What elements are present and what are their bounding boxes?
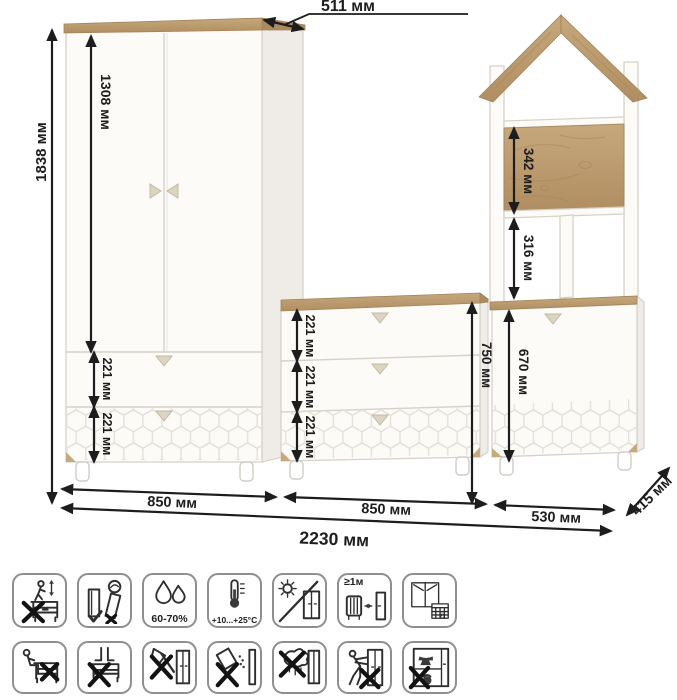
dimension-label-drawer-height: 221 мм (303, 416, 317, 459)
no-wet-cleaning-warning (272, 641, 327, 694)
radiator-distance-icon (342, 582, 388, 628)
roof-left-beam (479, 15, 561, 102)
dimension-label-chest-height: 750 мм (479, 342, 494, 388)
thermometer-icon (213, 579, 257, 609)
window-ventilation-icon: 21 (407, 578, 453, 624)
heater-distance-warning: ≥1м (337, 573, 392, 628)
no-sitting-warning (12, 641, 67, 694)
cabinet-honeycomb-band (493, 399, 636, 455)
furniture-scene: 1838 мм 1308 мм 221 мм 221 мм 221 мм 221… (0, 0, 677, 560)
chest-top-surface (480, 293, 488, 303)
wardrobe-top-board (64, 18, 262, 33)
no-overloading-icon (407, 645, 453, 691)
shelf-middle-divider (560, 215, 573, 298)
wardrobe-foot-left (76, 462, 89, 481)
dimension-label-depth: 415 мм (629, 473, 676, 519)
no-pushing-icon (342, 645, 388, 691)
house-left-post (490, 66, 504, 308)
furniture-dimension-diagram: 1838 мм 1308 мм 221 мм 221 мм 221 мм 221… (0, 0, 677, 700)
no-pushing-warning (337, 641, 392, 694)
cabinet-side-sliver (637, 296, 644, 452)
ventilation-info: 21 (402, 573, 457, 628)
cabinet-foot-right (618, 452, 631, 470)
dimension-label-open-shelf-height: 316 мм (521, 235, 536, 281)
dimension-label-right-cabinet-width: 530 мм (531, 509, 581, 527)
no-spilling-warning (207, 641, 262, 694)
dimension-label-chest-width: 850 мм (361, 501, 411, 519)
humidity-range-badge: 60-70% (142, 573, 197, 628)
dimension-label-top-depth: 511 мм (321, 0, 375, 15)
cabinet-foot-left (500, 457, 513, 475)
dimension-label-wardrobe-width: 850 мм (147, 494, 197, 512)
house-shelf-cabinet (479, 15, 647, 475)
calendar-day-label: 21 (439, 613, 445, 619)
dimension-label-drawer-height: 221 мм (303, 366, 317, 409)
dimension-label-door-height: 1308 мм (98, 74, 114, 130)
no-spilling-icon (212, 645, 258, 691)
roof-right-beam (561, 15, 647, 102)
dimension-label-drawer-height: 221 мм (100, 358, 114, 401)
no-climbing-icon (17, 578, 63, 624)
keep-upright-level-icon (82, 578, 128, 624)
no-overloading-warning (402, 641, 457, 694)
roof-grain-left (495, 32, 551, 88)
humidity-range-label: 60-70% (144, 614, 195, 625)
care-icons-row-2 (12, 641, 457, 694)
no-direct-sunlight-icon (277, 578, 323, 624)
avoid-sunlight-warning (272, 573, 327, 628)
care-icons-row-1: 60-70% +10...+25°C ≥1м (12, 573, 457, 628)
min-distance-label: ≥1м (344, 577, 363, 588)
chest-foot-right (456, 457, 469, 475)
wardrobe-foot-right (240, 462, 253, 481)
no-sharp-tools-warning (142, 641, 197, 694)
no-sitting-icon (17, 645, 63, 691)
no-sharp-tools-icon (147, 645, 193, 691)
dimension-label-drawer-height: 221 мм (303, 315, 317, 358)
no-standing-warning (77, 641, 132, 694)
no-climbing-warning (12, 573, 67, 628)
dimension-label-drawer-height: 221 мм (100, 413, 114, 456)
no-wet-cloth-icon (277, 645, 323, 691)
no-standing-icon (82, 645, 128, 691)
dimension-label-right-door-height: 670 мм (516, 349, 531, 395)
dimension-label-total-height: 1838 мм (33, 122, 50, 182)
dimension-label-oak-shelf-height: 342 мм (521, 148, 536, 194)
temperature-range-badge: +10...+25°C (207, 573, 262, 628)
water-drops-icon (148, 579, 192, 609)
keep-upright-warning (77, 573, 132, 628)
chest-foot-left (290, 461, 303, 479)
temperature-range-label: +10...+25°C (209, 616, 260, 625)
dimension-label-total-width: 2230 мм (299, 528, 369, 551)
